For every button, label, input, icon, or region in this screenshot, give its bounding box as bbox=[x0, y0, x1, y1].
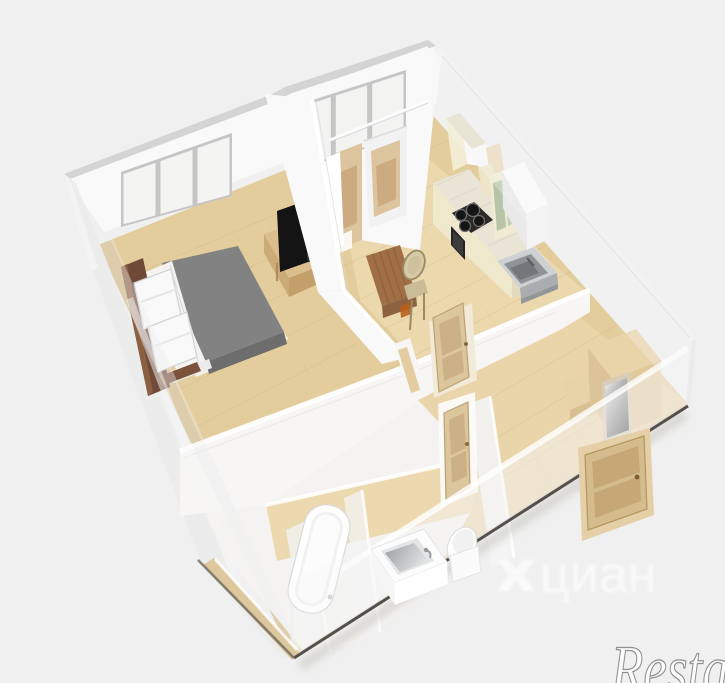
svg-text:циан: циан bbox=[540, 546, 656, 604]
svg-text:Restate: Restate bbox=[610, 633, 725, 683]
